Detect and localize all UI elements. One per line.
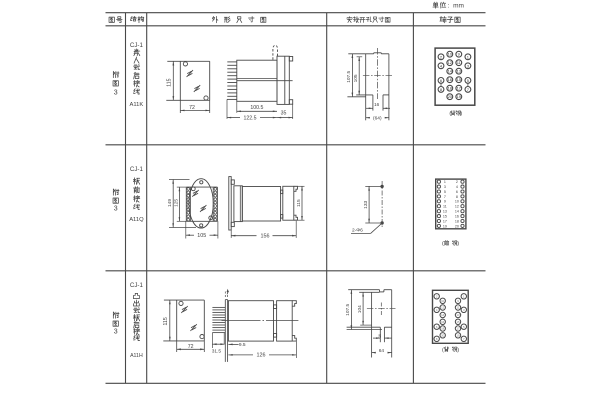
svg-text:105: 105 <box>197 233 206 239</box>
svg-text:11: 11 <box>443 205 447 209</box>
svg-text:20: 20 <box>448 94 453 99</box>
svg-text:107.5: 107.5 <box>346 70 352 82</box>
svg-text:(: ( <box>442 241 444 247</box>
svg-text:115: 115 <box>167 78 173 86</box>
svg-text:107.5: 107.5 <box>345 303 351 315</box>
svg-text:12: 12 <box>441 306 445 310</box>
svg-text:12: 12 <box>448 60 453 65</box>
svg-text:20: 20 <box>441 334 445 338</box>
svg-text:5: 5 <box>444 190 446 194</box>
svg-text:19: 19 <box>456 334 460 338</box>
svg-text:16: 16 <box>374 102 380 107</box>
svg-text:A11K: A11K <box>130 102 144 108</box>
svg-text:18: 18 <box>441 327 445 331</box>
svg-text:9.5: 9.5 <box>239 342 246 348</box>
svg-text:100.5: 100.5 <box>250 105 263 111</box>
svg-text:11: 11 <box>456 306 459 310</box>
svg-text:19: 19 <box>457 94 462 99</box>
svg-text:(: ( <box>442 347 444 353</box>
svg-text:13: 13 <box>456 313 460 317</box>
svg-text:125: 125 <box>174 199 180 207</box>
svg-text:6: 6 <box>456 190 458 194</box>
svg-text:10: 10 <box>448 52 453 57</box>
svg-text:3: 3 <box>444 185 446 189</box>
svg-text:(64): (64) <box>373 116 382 122</box>
svg-text:20: 20 <box>455 224 459 228</box>
svg-text:4: 4 <box>456 185 458 189</box>
svg-text:122.5: 122.5 <box>244 116 257 122</box>
svg-text:15: 15 <box>443 215 447 219</box>
svg-text:64: 64 <box>379 348 385 354</box>
svg-text:19: 19 <box>443 224 447 228</box>
svg-text:17: 17 <box>443 219 447 223</box>
svg-text:105: 105 <box>353 74 359 82</box>
svg-text:14: 14 <box>441 313 445 317</box>
svg-text:): ) <box>457 241 459 247</box>
svg-text:13: 13 <box>457 69 462 74</box>
svg-text:CJ-1: CJ-1 <box>130 42 144 49</box>
svg-text:14: 14 <box>455 210 459 214</box>
svg-text:72: 72 <box>189 105 195 111</box>
svg-text:16: 16 <box>455 215 459 219</box>
svg-text:): ) <box>460 111 462 117</box>
svg-text:12: 12 <box>455 205 459 209</box>
svg-text:115: 115 <box>163 317 169 325</box>
svg-text:2: 2 <box>456 180 458 184</box>
svg-text:10: 10 <box>455 200 459 204</box>
svg-text:17: 17 <box>456 327 460 331</box>
svg-text:126: 126 <box>257 353 266 359</box>
svg-text:115: 115 <box>296 199 302 207</box>
svg-text:35: 35 <box>281 111 287 117</box>
svg-text:A11H: A11H <box>130 353 143 359</box>
svg-text:A11Q: A11Q <box>129 217 144 223</box>
svg-text:CJ-1: CJ-1 <box>130 166 144 173</box>
svg-text:18: 18 <box>448 86 453 91</box>
svg-text:CJ-1: CJ-1 <box>130 282 144 289</box>
svg-text:16: 16 <box>441 320 445 324</box>
svg-text:9: 9 <box>444 200 446 204</box>
svg-text:16: 16 <box>448 77 453 82</box>
svg-text:10: 10 <box>441 299 445 303</box>
svg-text:18: 18 <box>455 219 459 223</box>
svg-text:104: 104 <box>357 305 363 313</box>
svg-text:): ) <box>457 347 459 353</box>
svg-text:156: 156 <box>261 233 270 239</box>
svg-text:8: 8 <box>456 195 458 199</box>
svg-text:72: 72 <box>188 344 194 350</box>
svg-text:14: 14 <box>448 69 453 74</box>
svg-text:17: 17 <box>457 86 462 91</box>
svg-text:2-Φ6: 2-Φ6 <box>352 228 363 234</box>
svg-text:15: 15 <box>457 77 462 82</box>
svg-text:3: 3 <box>114 206 118 213</box>
svg-text:16: 16 <box>378 334 382 338</box>
svg-text:mm: mm <box>453 3 464 10</box>
svg-text:3: 3 <box>114 329 118 336</box>
svg-text::: : <box>448 3 450 10</box>
svg-text:3: 3 <box>114 90 118 97</box>
svg-text:31.5: 31.5 <box>212 348 222 354</box>
svg-text:(: ( <box>449 111 451 117</box>
svg-text:7: 7 <box>444 195 446 199</box>
svg-text:133: 133 <box>363 200 369 208</box>
svg-text:1: 1 <box>444 180 446 184</box>
svg-text:15: 15 <box>456 320 460 324</box>
svg-text:13: 13 <box>443 210 447 214</box>
svg-text:149: 149 <box>167 199 173 207</box>
